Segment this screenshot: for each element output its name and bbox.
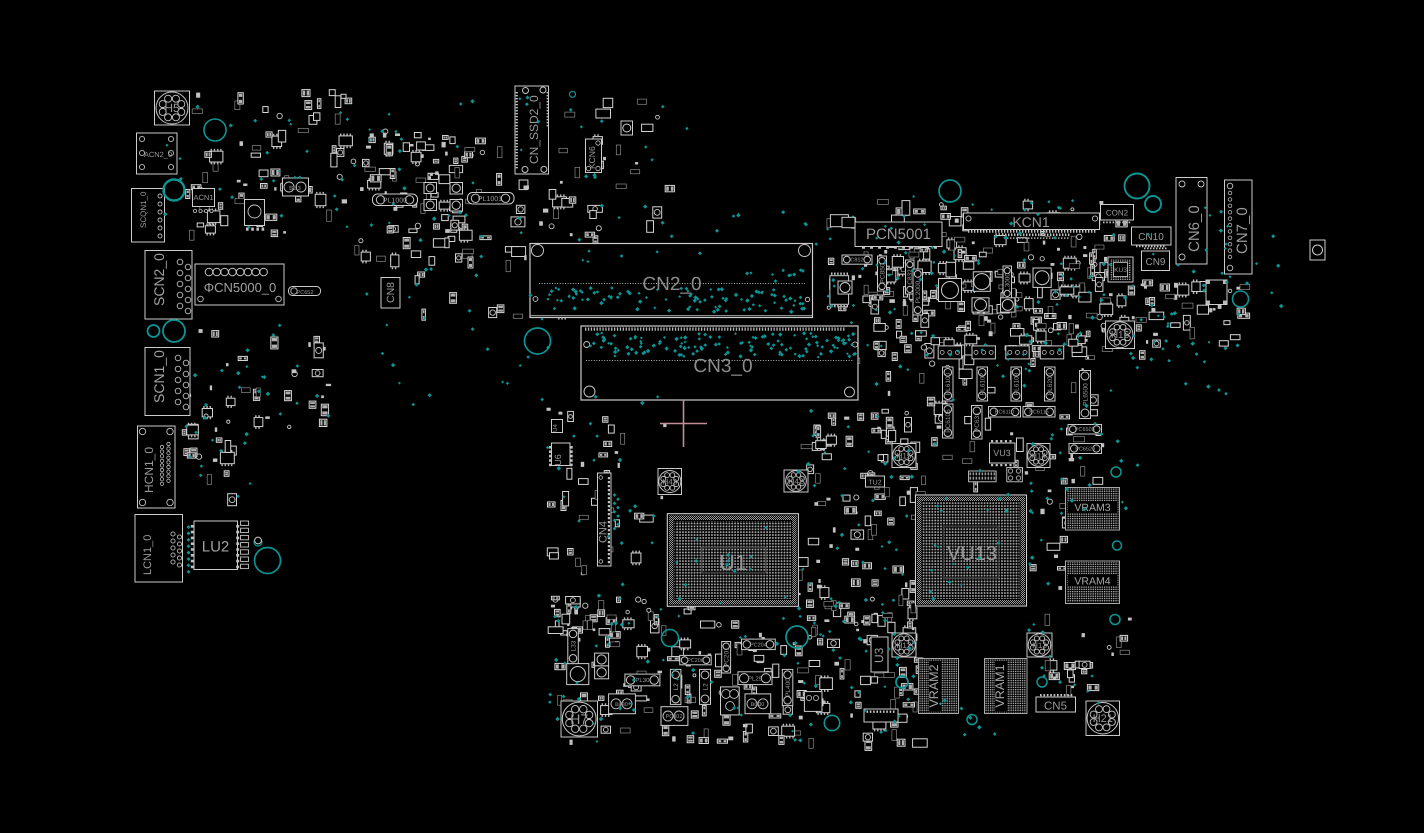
svg-text:PL6102: PL6102 [980,372,987,395]
svg-text:LCN1_0: LCN1_0 [142,535,154,575]
svg-text:PC201: PC201 [723,647,730,667]
svg-text:H14: H14 [1031,451,1046,460]
svg-text:L2: L2 [702,683,709,691]
svg-text:PC204: PC204 [750,642,767,648]
svg-text:PL400: PL400 [785,678,792,697]
svg-text:H43: H43 [662,477,677,486]
svg-text:PL1000: PL1000 [383,198,407,205]
svg-text:TU2: TU2 [868,480,881,487]
svg-text:CN4: CN4 [598,521,610,543]
svg-text:L3000: L3000 [1005,273,1012,291]
svg-text:PL6100: PL6100 [945,372,952,395]
svg-text:KU3: KU3 [1114,267,1127,274]
svg-text:CN_SSD2_0: CN_SSD2_0 [527,95,541,164]
svg-text:VRAM3: VRAM3 [1074,502,1110,514]
svg-text:ACN2_0: ACN2_0 [144,150,172,159]
svg-text:CN8: CN8 [385,282,397,303]
svg-text:U3: U3 [872,647,886,663]
svg-text:PL29: PL29 [748,675,763,682]
svg-text:PL6200: PL6200 [1047,372,1054,395]
svg-text:CN6_0: CN6_0 [1186,205,1203,252]
svg-text:H7: H7 [570,711,588,727]
svg-text:PC6520: PC6520 [1075,446,1095,452]
svg-text:BC30: BC30 [751,702,765,708]
svg-text:VRAM1: VRAM1 [993,664,1007,707]
svg-text:ΦCN5000_0: ΦCN5000_0 [204,280,277,295]
svg-text:PC6110: PC6110 [995,410,1014,416]
svg-text:L2: L2 [673,683,680,691]
svg-text:PCN5001: PCN5001 [866,226,931,243]
svg-text:CN2_0: CN2_0 [642,274,701,295]
svg-text:PL1001: PL1001 [478,196,502,203]
svg-text:PL6500: PL6500 [1082,383,1089,406]
svg-text:PC206: PC206 [687,658,704,664]
svg-text:H13: H13 [1032,641,1047,650]
svg-text:B030: B030 [615,702,628,708]
svg-text:PC850: PC850 [879,263,886,283]
svg-text:U6: U6 [553,454,563,466]
svg-text:SCN1_0: SCN1_0 [151,350,167,403]
svg-text:KCN6: KCN6 [587,146,597,169]
svg-text:PC6505: PC6505 [1075,427,1095,433]
svg-text:KCN1: KCN1 [1012,214,1050,230]
svg-text:C852: C852 [850,258,863,264]
svg-text:PC652: PC652 [297,290,314,296]
svg-text:VU3: VU3 [993,448,1011,458]
svg-text:CN10: CN10 [1138,232,1164,243]
svg-text:SCQN1_0: SCQN1_0 [139,191,148,228]
svg-text:LU2: LU2 [202,539,230,556]
svg-text:H21: H21 [1093,713,1113,725]
svg-text:H42: H42 [789,477,804,486]
svg-text:H15: H15 [897,451,912,460]
svg-text:L33: L33 [570,640,577,651]
svg-text:CN3_0: CN3_0 [693,356,752,377]
svg-text:H5: H5 [164,101,180,115]
svg-text:BU3: BU3 [289,185,301,192]
svg-text:VRAM4: VRAM4 [1074,576,1110,588]
svg-text:CN7_0: CN7_0 [1234,207,1251,254]
svg-text:H16: H16 [1111,330,1130,341]
svg-text:ACN1: ACN1 [193,193,213,202]
svg-text:CN9: CN9 [1145,257,1165,268]
svg-text:VRAM2: VRAM2 [927,664,941,707]
svg-text:PC6115: PC6115 [1029,410,1048,416]
svg-text:PL2000: PL2000 [915,280,922,303]
svg-text:HCN1_0: HCN1_0 [142,447,156,493]
svg-text:PC631: PC631 [974,412,981,432]
svg-text:PC6105: PC6105 [945,409,952,433]
svg-text:CN5: CN5 [1044,701,1067,713]
svg-text:PC302: PC302 [666,714,683,720]
svg-text:PL6103: PL6103 [1014,372,1021,395]
svg-text:VU13: VU13 [947,543,997,565]
svg-text:CON2: CON2 [1106,209,1129,218]
svg-text:PL30: PL30 [635,677,650,684]
svg-text:SCN2_0: SCN2_0 [151,253,167,306]
svg-text:U4: U4 [552,424,559,432]
